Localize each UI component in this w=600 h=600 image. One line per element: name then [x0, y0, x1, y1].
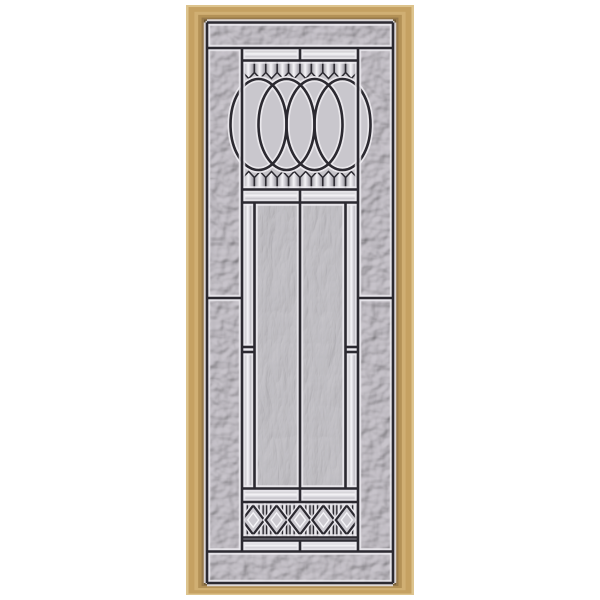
swirl-glass-panel — [301, 203, 344, 489]
door-glass-insert — [0, 0, 600, 600]
cathedral-ovals — [231, 79, 371, 170]
product-image — [0, 0, 600, 600]
diamond-band — [242, 504, 358, 537]
swirl-glass-panel — [256, 203, 299, 489]
